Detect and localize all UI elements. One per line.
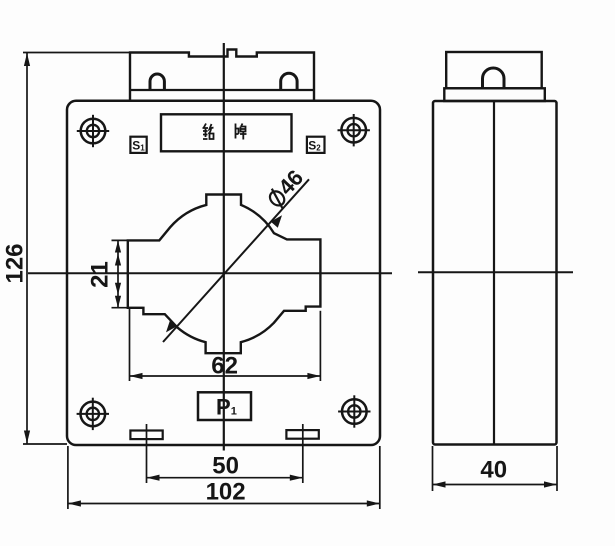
- svg-text:50: 50: [212, 453, 239, 480]
- svg-text:40: 40: [480, 457, 507, 484]
- svg-text:21: 21: [87, 261, 114, 288]
- svg-text:102: 102: [206, 479, 246, 506]
- svg-text:62: 62: [211, 353, 238, 380]
- svg-text:126: 126: [2, 243, 29, 283]
